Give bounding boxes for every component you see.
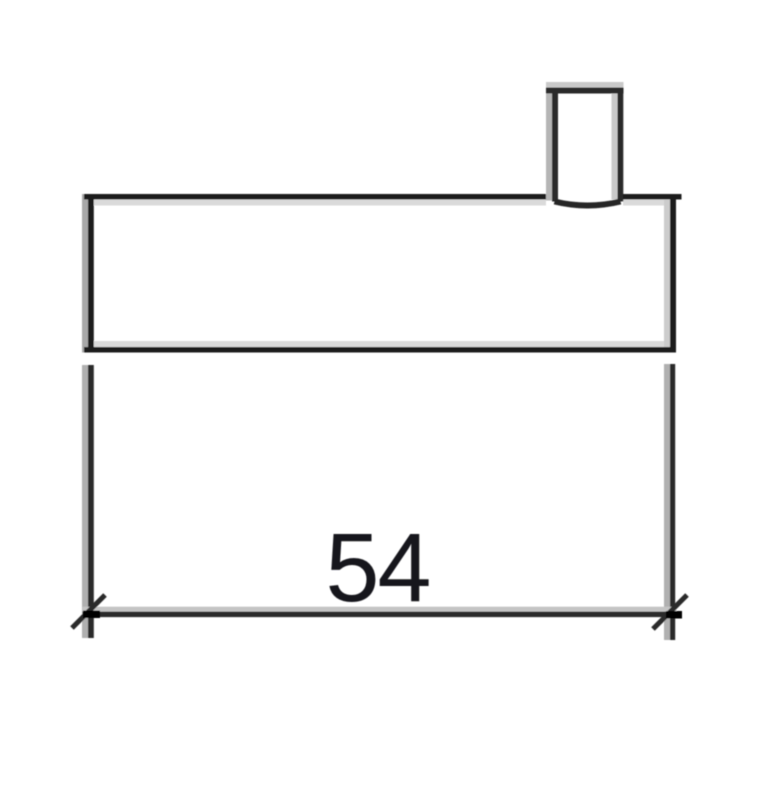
svg-text:54: 54 [326,513,430,622]
